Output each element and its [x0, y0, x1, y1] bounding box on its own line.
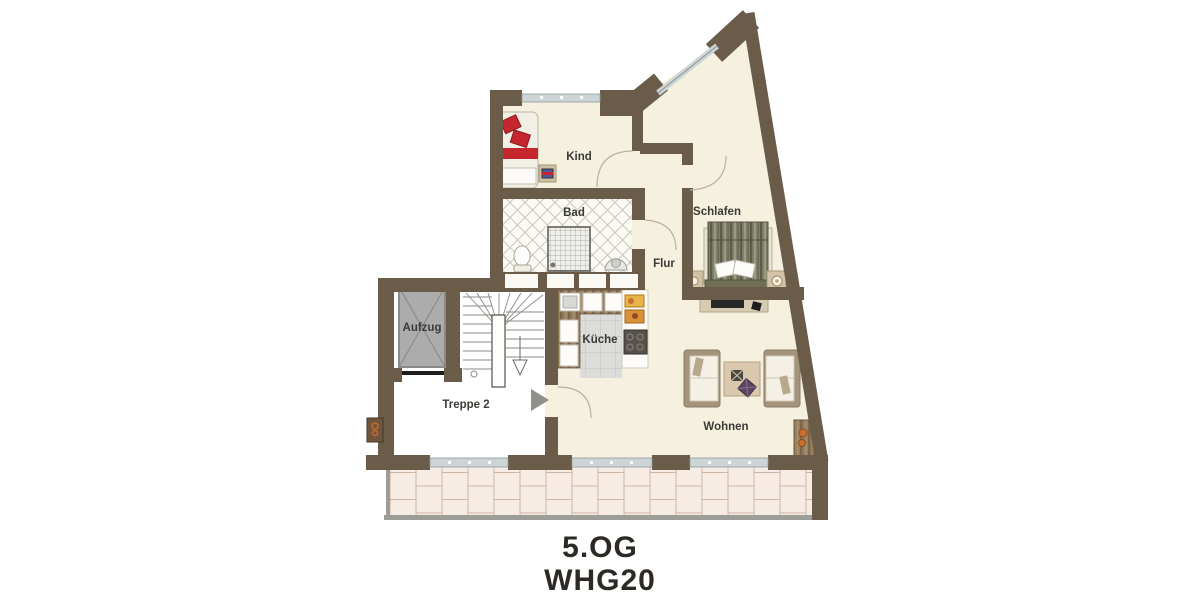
wall: [490, 188, 645, 199]
room-label-schlafen: Schlafen: [693, 206, 741, 218]
kitchen-sink-basin: [563, 296, 577, 308]
shower-head: [551, 263, 556, 268]
stove: [624, 330, 647, 354]
niche: [505, 274, 538, 288]
cabinet-2: [605, 293, 623, 311]
stair-treads-left: [463, 297, 492, 369]
terrace: [384, 462, 828, 520]
terrace-tiles: [386, 462, 812, 520]
room-label-aufzug: Aufzug: [403, 322, 442, 334]
plan-title-floor: 5.OG: [562, 531, 638, 564]
elevator-door: [402, 371, 444, 375]
niche: [579, 274, 606, 288]
food-1: [628, 298, 634, 304]
niche: [610, 274, 638, 288]
plan-title-unit: WHG20: [544, 564, 656, 597]
room-label-kueche: Küche: [582, 334, 617, 346]
wall: [682, 287, 804, 300]
kind-side-table-item-stripe: [542, 172, 553, 175]
wall-niches: [505, 274, 638, 288]
staircase: [463, 293, 544, 387]
wall: [366, 455, 430, 470]
toilet-tank: [514, 265, 531, 272]
cabinet-1: [583, 293, 602, 311]
wall: [632, 199, 645, 220]
tv: [711, 300, 744, 308]
wall: [508, 455, 572, 470]
decor-marker: [367, 418, 383, 442]
wall: [682, 188, 693, 300]
wall: [652, 455, 690, 470]
stair-direction-arrow: [513, 360, 527, 375]
terrace-railing-bottom: [384, 515, 828, 520]
room-label-bad: Bad: [563, 207, 585, 219]
floorplan-svg: Kind Bad Schlafen Flur Küche Aufzug Trep…: [0, 0, 1200, 600]
cabinet-3: [560, 320, 578, 342]
wall: [545, 278, 558, 385]
stair-spine: [492, 315, 505, 387]
kind-bed-foot: [498, 168, 536, 184]
terrace-railing-left: [386, 468, 390, 516]
wall: [812, 458, 828, 520]
food-tray-1: [625, 295, 644, 307]
sink-basin: [612, 259, 621, 268]
room-label-flur: Flur: [653, 258, 675, 270]
wall: [444, 368, 462, 382]
niche: [547, 274, 574, 288]
wall: [682, 143, 693, 165]
nightstand-right-lamp-center: [775, 279, 779, 283]
wall: [545, 417, 558, 458]
food-2: [632, 313, 638, 319]
walkline-start: [471, 371, 477, 377]
kueche-floor-tiles: [580, 314, 622, 378]
wall: [378, 368, 402, 382]
plant-2: [799, 440, 806, 447]
wall: [446, 278, 460, 382]
floorplan-canvas: Kind Bad Schlafen Flur Küche Aufzug Trep…: [0, 0, 1200, 600]
room-label-treppe: Treppe 2: [442, 399, 489, 411]
cabinet-4: [560, 345, 578, 366]
room-label-kind: Kind: [566, 151, 592, 163]
room-label-wohnen: Wohnen: [703, 421, 748, 433]
plan-title-group: 5.OG WHG20: [544, 531, 656, 597]
toilet-bowl: [514, 246, 530, 266]
plant-1: [799, 429, 807, 437]
